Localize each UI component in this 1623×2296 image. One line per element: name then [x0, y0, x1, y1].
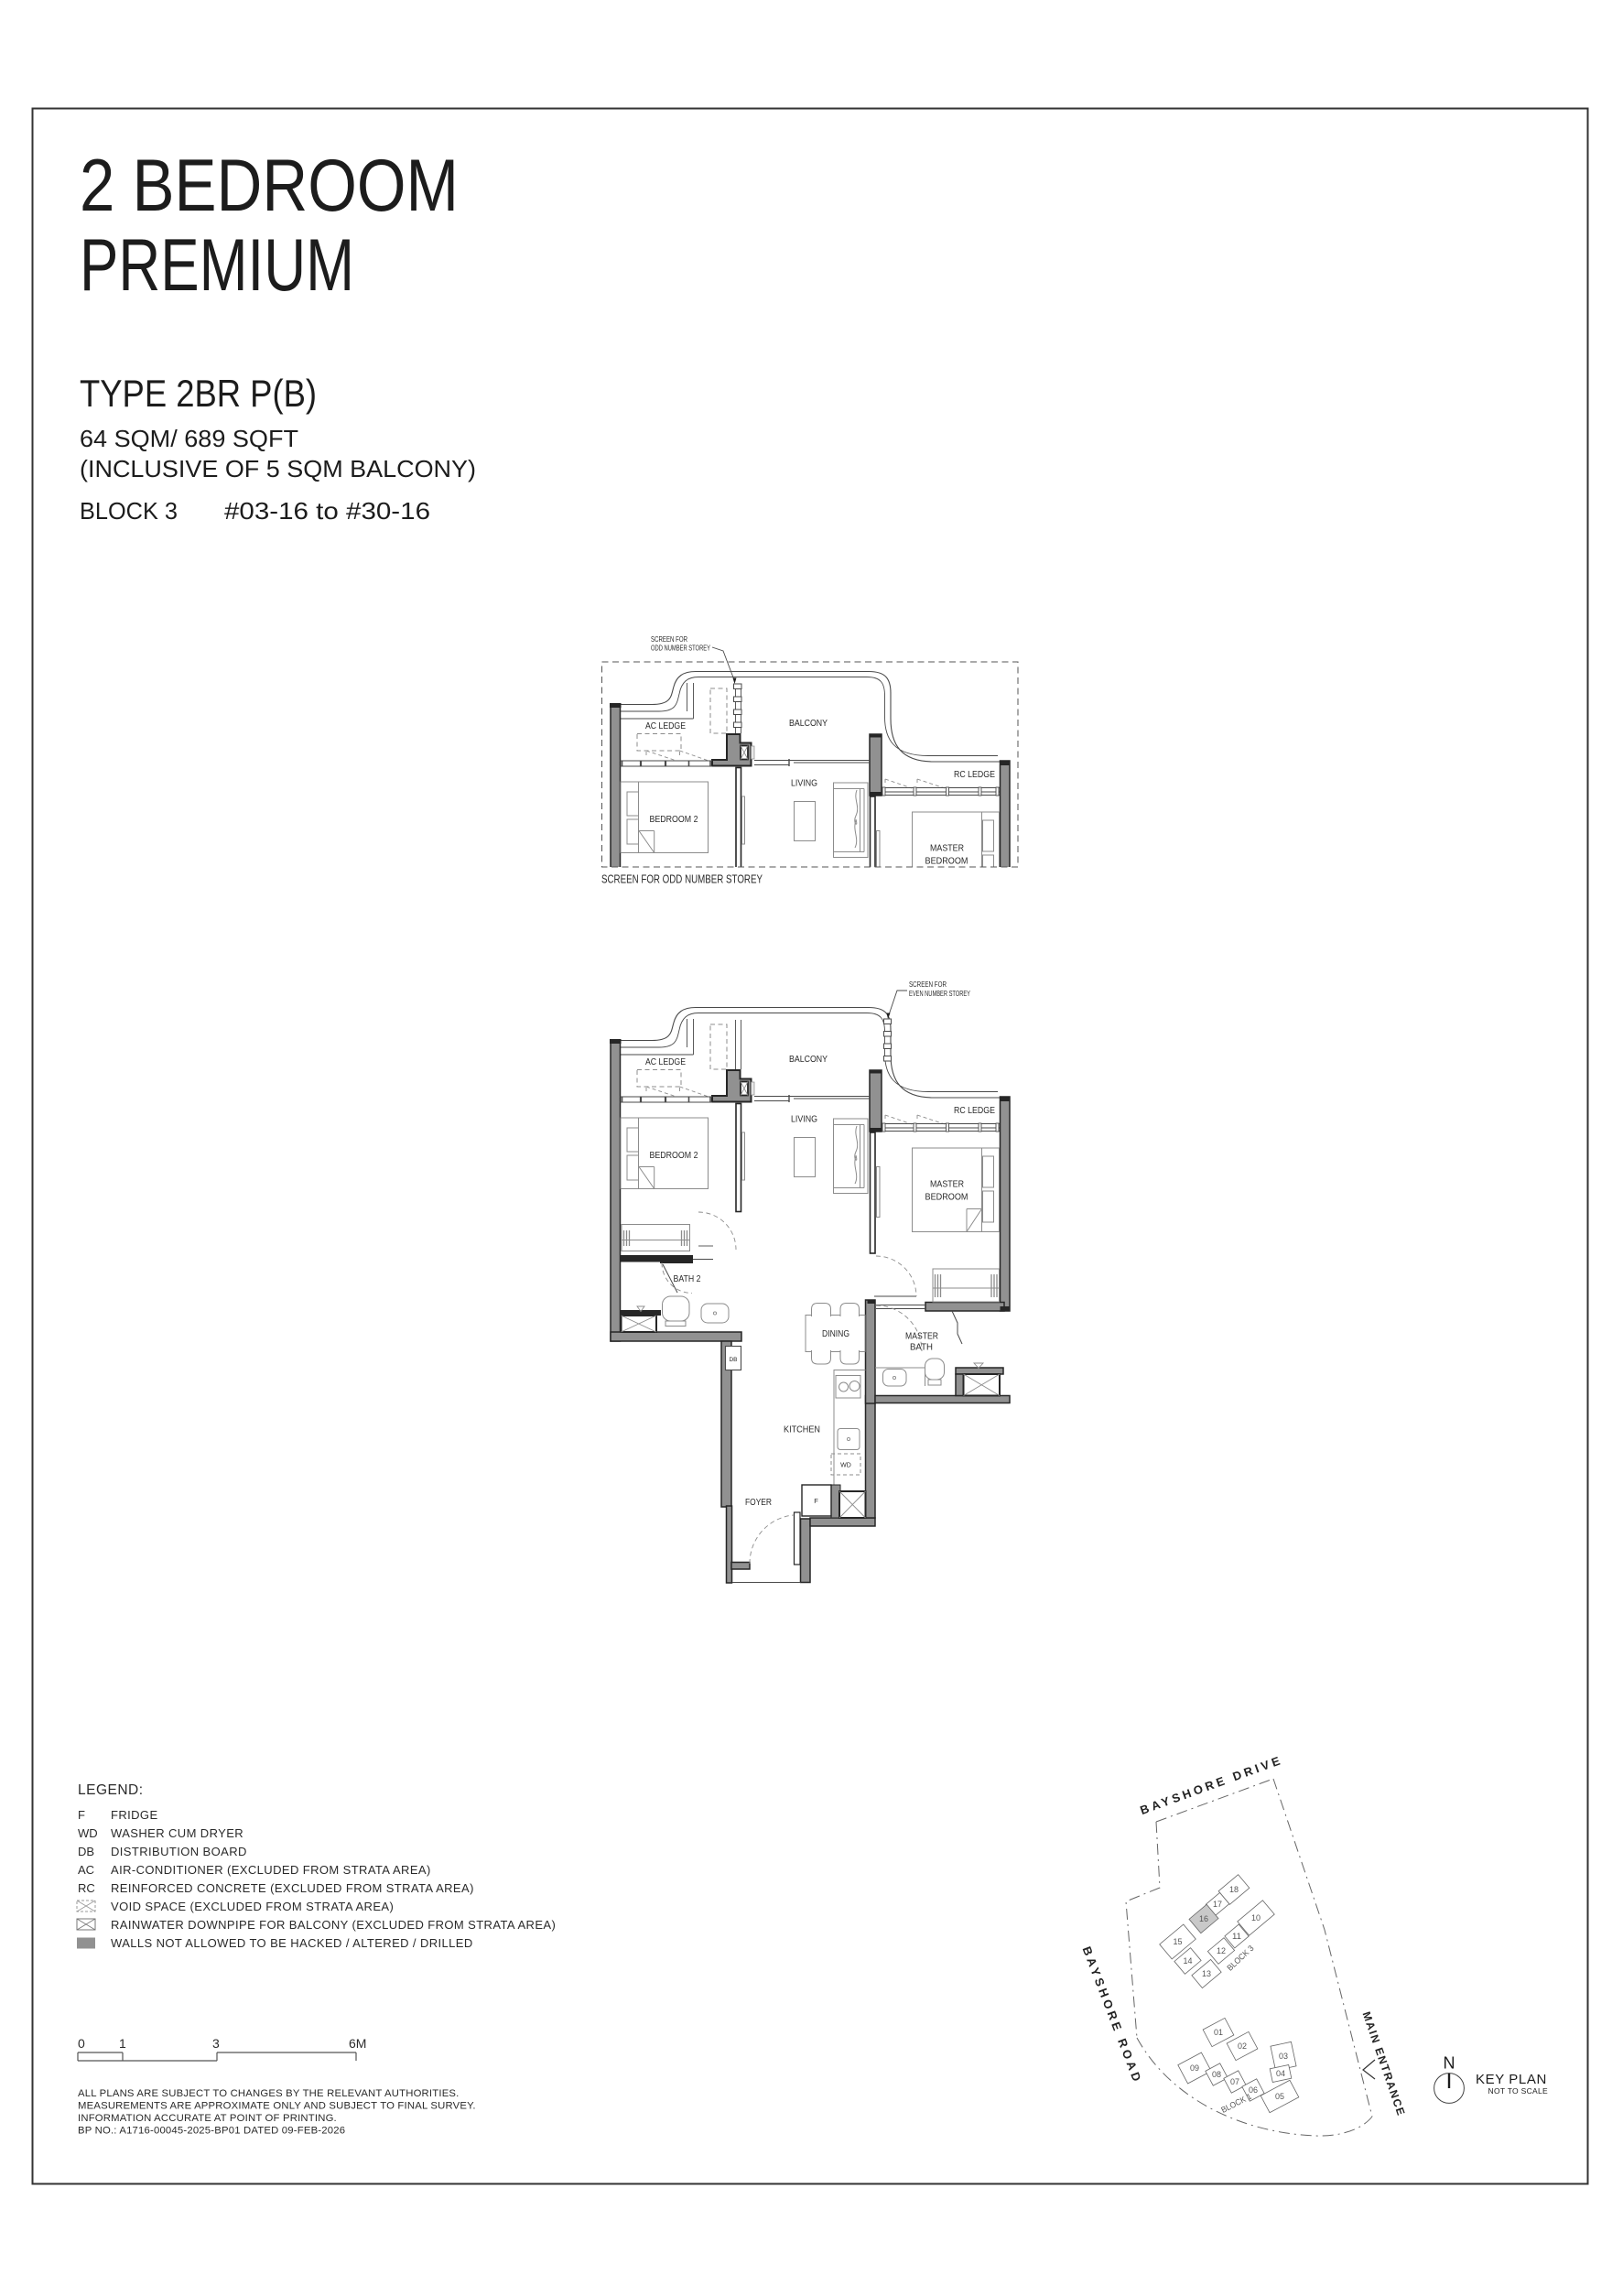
svg-text:DISTRIBUTION BOARD: DISTRIBUTION BOARD [111, 1845, 247, 1858]
svg-text:NOT TO SCALE: NOT TO SCALE [1488, 2086, 1549, 2096]
svg-text:09: 09 [1190, 2063, 1199, 2073]
svg-text:BAYSHORE DRIVE: BAYSHORE DRIVE [1138, 1753, 1284, 1817]
svg-text:BATH: BATH [910, 1342, 933, 1353]
svg-text:BAYSHORE ROAD: BAYSHORE ROAD [1080, 1944, 1145, 2086]
svg-text:VOID SPACE (EXCLUDED FROM STRA: VOID SPACE (EXCLUDED FROM STRATA AREA) [111, 1900, 394, 1913]
svg-text:BEDROOM: BEDROOM [925, 1192, 968, 1203]
svg-text:08: 08 [1212, 2070, 1221, 2079]
svg-text:MEASUREMENTS ARE APPROXIMATE O: MEASUREMENTS ARE APPROXIMATE ONLY AND SU… [78, 2101, 476, 2112]
svg-text:REINFORCED CONCRETE (EXCLUDED: REINFORCED CONCRETE (EXCLUDED FROM STRAT… [111, 1881, 474, 1895]
svg-text:3: 3 [212, 2036, 220, 2051]
svg-text:03: 03 [1279, 2052, 1288, 2061]
svg-text:FOYER: FOYER [745, 1497, 772, 1508]
svg-text:10: 10 [1251, 1913, 1261, 1922]
svg-text:WD: WD [78, 1826, 98, 1840]
svg-text:WALLS NOT ALLOWED TO BE HACKED: WALLS NOT ALLOWED TO BE HACKED / ALTERED… [111, 1936, 473, 1950]
svg-text:1: 1 [119, 2036, 126, 2051]
svg-text:FRIDGE: FRIDGE [111, 1808, 158, 1822]
svg-text:BALCONY: BALCONY [789, 1054, 828, 1065]
svg-text:2 BEDROOM: 2 BEDROOM [80, 145, 459, 227]
svg-text:0: 0 [78, 2036, 85, 2051]
svg-text:MASTER: MASTER [905, 1331, 938, 1342]
svg-text:12: 12 [1217, 1946, 1226, 1955]
svg-text:ODD NUMBER STOREY: ODD NUMBER STOREY [651, 644, 710, 653]
svg-text:KEY PLAN: KEY PLAN [1476, 2072, 1547, 2087]
svg-text:SCREEN FOR: SCREEN FOR [651, 635, 687, 644]
svg-text:13: 13 [1202, 1969, 1211, 1978]
svg-text:MAIN ENTRANCE: MAIN ENTRANCE [1360, 2010, 1408, 2118]
svg-text:BP NO.: A1716-00045-2025-BP01: BP NO.: A1716-00045-2025-BP01 DATED 09-F… [78, 2126, 345, 2137]
svg-text:RC: RC [78, 1881, 95, 1895]
svg-text:06: 06 [1249, 2085, 1258, 2095]
svg-text:F: F [78, 1808, 85, 1822]
svg-text:AIR-CONDITIONER (EXCLUDED FROM: AIR-CONDITIONER (EXCLUDED FROM STRATA AR… [111, 1863, 431, 1877]
svg-text:SCREEN FOR: SCREEN FOR [909, 980, 947, 989]
svg-text:18: 18 [1229, 1885, 1239, 1894]
svg-text:BEDROOM 2: BEDROOM 2 [650, 1150, 698, 1161]
svg-text:LIVING: LIVING [791, 1114, 817, 1125]
svg-text:04: 04 [1276, 2069, 1285, 2078]
svg-text:07: 07 [1230, 2077, 1239, 2086]
svg-text:BLOCK 1: BLOCK 1 [1219, 2092, 1253, 2115]
svg-text:01: 01 [1214, 2028, 1223, 2037]
svg-text:LEGEND:: LEGEND: [78, 1782, 144, 1798]
svg-text:INFORMATION ACCURATE AT POINT: INFORMATION ACCURATE AT POINT OF PRINTIN… [78, 2113, 337, 2124]
svg-text:64 SQM/ 689 SQFT: 64 SQM/ 689 SQFT [80, 425, 298, 452]
svg-text:DB: DB [729, 1357, 737, 1363]
svg-text:(INCLUSIVE OF 5 SQM BALCONY): (INCLUSIVE OF 5 SQM BALCONY) [80, 455, 476, 482]
svg-text:AC LEDGE: AC LEDGE [645, 1056, 686, 1067]
svg-text:6M: 6M [349, 2036, 366, 2051]
svg-text:RAINWATER DOWNPIPE FOR BALCONY: RAINWATER DOWNPIPE FOR BALCONY (EXCLUDED… [111, 1918, 556, 1932]
svg-text:KITCHEN: KITCHEN [784, 1424, 820, 1435]
svg-text:#03-16 to #30-16: #03-16 to #30-16 [224, 497, 430, 525]
svg-text:DINING: DINING [822, 1328, 849, 1339]
svg-text:SCREEN FOR ODD NUMBER STOREY: SCREEN FOR ODD NUMBER STOREY [601, 873, 763, 886]
svg-text:TYPE 2BR P(B): TYPE 2BR P(B) [80, 372, 317, 415]
svg-text:WASHER CUM DRYER: WASHER CUM DRYER [111, 1826, 243, 1840]
svg-text:02: 02 [1238, 2041, 1247, 2051]
svg-text:BLOCK 3: BLOCK 3 [80, 497, 178, 525]
svg-text:BATH 2: BATH 2 [674, 1273, 701, 1284]
svg-text:DB: DB [78, 1845, 94, 1858]
svg-text:RC LEDGE: RC LEDGE [954, 1105, 995, 1116]
svg-text:WD: WD [840, 1463, 851, 1469]
svg-text:PREMIUM: PREMIUM [80, 224, 354, 307]
svg-text:17: 17 [1213, 1900, 1222, 1909]
svg-text:16: 16 [1199, 1914, 1208, 1923]
svg-text:05: 05 [1275, 2092, 1284, 2101]
svg-text:AC: AC [78, 1863, 94, 1877]
svg-text:N: N [1444, 2054, 1455, 2073]
svg-text:14: 14 [1184, 1956, 1193, 1966]
svg-text:MASTER: MASTER [930, 1179, 964, 1190]
svg-text:ALL PLANS ARE SUBJECT TO CHANG: ALL PLANS ARE SUBJECT TO CHANGES BY THE … [78, 2088, 460, 2099]
svg-text:15: 15 [1174, 1937, 1183, 1946]
svg-text:11: 11 [1232, 1932, 1241, 1941]
svg-text:EVEN NUMBER STOREY: EVEN NUMBER STOREY [909, 990, 970, 998]
svg-text:F: F [814, 1497, 818, 1505]
